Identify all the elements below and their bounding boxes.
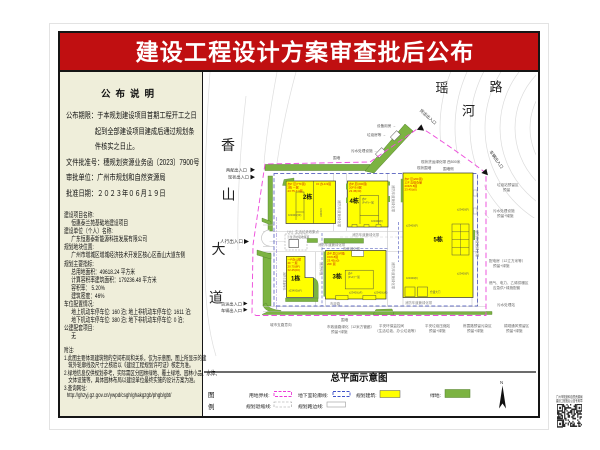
svg-text:±23400(±F): ±23400(±F) bbox=[288, 213, 302, 217]
svg-text:平安垃圾压缩站: 平安垃圾压缩站 bbox=[425, 323, 451, 328]
svg-text:现状货运绿化带 西500米: 现状货运绿化带 西500米 bbox=[421, 159, 461, 164]
svg-text:±23400(F): ±23400(F) bbox=[406, 276, 418, 280]
svg-text:车辆出入口: 车辆出入口 bbox=[221, 307, 242, 314]
svg-text:1栋: 1栋 bbox=[291, 275, 300, 283]
svg-text:污水处理站: 污水处理站 bbox=[497, 302, 515, 307]
svg-text:用地界线:: 用地界线: bbox=[249, 392, 270, 399]
svg-text:消防车道兼绿化带: 消防车道兼绿化带 bbox=[391, 185, 396, 213]
svg-text:市政路: 市政路 bbox=[330, 301, 341, 306]
svg-text:图: 图 bbox=[208, 391, 215, 399]
svg-text:预留+绿施: 预留+绿施 bbox=[506, 328, 523, 333]
svg-text:23.75-7.3展: 23.75-7.3展 bbox=[288, 188, 303, 193]
svg-text:±23400(±F): ±23400(±F) bbox=[289, 289, 303, 293]
svg-text:现状围墙: 现状围墙 bbox=[417, 165, 432, 170]
svg-text:香: 香 bbox=[221, 137, 235, 153]
svg-text:车辆出入口: 车辆出入口 bbox=[488, 149, 506, 170]
svg-text:3栋: 3栋 bbox=[333, 273, 342, 281]
svg-text:规划路边线:: 规划路边线: bbox=[298, 403, 323, 410]
svg-text:地下室轮廓线:: 地下室轮廓线: bbox=[298, 392, 328, 399]
svg-text:货运出入口: 货运出入口 bbox=[418, 107, 438, 126]
svg-text:锦观通风预留区: 锦观通风预留区 bbox=[504, 323, 530, 328]
svg-text:规划建筑:: 规划建筑: bbox=[356, 392, 377, 399]
svg-text:例: 例 bbox=[208, 402, 215, 411]
svg-text:污水处理设施 →: 污水处理设施 → bbox=[351, 148, 377, 153]
svg-text:±2.45(±0): ±2.45(±0) bbox=[288, 268, 300, 272]
svg-text:预留+绿施: 预留+绿施 bbox=[493, 263, 510, 268]
svg-text:办P: 办P bbox=[362, 197, 367, 201]
svg-text:(P+F)一展: (P+F)一展 bbox=[362, 201, 374, 205]
svg-text:现状出入口: 现状出入口 bbox=[228, 174, 249, 181]
svg-text:23.45(±0): 23.45(±0) bbox=[349, 189, 361, 193]
svg-text:办P: 办P bbox=[348, 272, 353, 276]
svg-text:瑶: 瑶 bbox=[436, 81, 449, 96]
svg-text:4栋: 4栋 bbox=[350, 197, 359, 205]
svg-text:燃气、电力、乙烯供暖区: 燃气、电力、乙烯供暖区 bbox=[489, 280, 529, 285]
svg-text:消防车道: 消防车道 bbox=[319, 262, 324, 276]
svg-text:两配出入口: 两配出入口 bbox=[226, 167, 247, 174]
svg-text:应急供+绿施配套: 应急供+绿施配套 bbox=[493, 285, 521, 290]
svg-text:垃圾房等 →: 垃圾房等 → bbox=[367, 132, 386, 137]
svg-text:2栋: 2栋 bbox=[303, 193, 312, 201]
svg-text:污水处理设施: 污水处理设施 bbox=[493, 208, 515, 213]
svg-text:山: 山 bbox=[222, 187, 236, 203]
svg-text:±23400(F): ±23400(F) bbox=[371, 219, 383, 223]
svg-text:仓储大门: 仓储大门 bbox=[430, 290, 441, 294]
svg-text:（六）生活垃圾收集点: （六）生活垃圾收集点 bbox=[285, 229, 320, 234]
svg-text:路: 路 bbox=[490, 80, 503, 95]
svg-text:河: 河 bbox=[462, 104, 475, 119]
svg-text:N: N bbox=[500, 380, 503, 385]
svg-text:围墙: 围墙 bbox=[333, 155, 341, 160]
svg-text:①生活垃圾收集点: ①生活垃圾收集点 bbox=[287, 235, 310, 239]
svg-text:±23400: ±23400 bbox=[319, 208, 323, 217]
svg-text:城市支路意向: 城市支路意向 bbox=[270, 322, 292, 327]
svg-text:±23400(F): ±23400(F) bbox=[457, 272, 469, 276]
svg-text:±23400(F): ±23400(F) bbox=[406, 224, 418, 228]
svg-text:5栋: 5栋 bbox=[434, 236, 443, 244]
svg-text:预留+绿施: 预留+绿施 bbox=[467, 328, 484, 333]
svg-text:设备用房 →: 设备用房 → bbox=[377, 123, 396, 128]
svg-text:消防车道兼绿化带: 消防车道兼绿化带 bbox=[352, 232, 380, 237]
svg-text:消防车道兼绿化带: 消防车道兼绿化带 bbox=[318, 242, 346, 247]
svg-text:货运出入口: 货运出入口 bbox=[221, 301, 242, 308]
svg-text:23.45(±0): 23.45(±0) bbox=[405, 188, 417, 192]
svg-text:围墙侧: 围墙侧 bbox=[443, 166, 454, 171]
svg-text:（生活垃圾、办公垃圾等）: （生活垃圾、办公垃圾等） bbox=[375, 328, 418, 333]
svg-text:市政绿化带: 市政绿化带 bbox=[343, 246, 361, 251]
svg-text:20F 展: 20F 展 bbox=[327, 261, 336, 266]
svg-text:消防车道兼绿化带: 消防车道兼绿化带 bbox=[405, 300, 433, 305]
svg-text:消防车道兼绿化带: 消防车道兼绿化带 bbox=[337, 200, 342, 228]
svg-text:围墙: 围墙 bbox=[341, 317, 349, 322]
svg-text:配电房（12立方米等）: 配电房（12立方米等） bbox=[489, 258, 525, 263]
svg-text:预留+绿施: 预留+绿施 bbox=[429, 328, 446, 333]
svg-text:市政道路绿化（12米方管廊）: 市政道路绿化（12米方管廊） bbox=[327, 324, 374, 329]
svg-text:预留+绿施: 预留+绿施 bbox=[331, 329, 348, 334]
svg-text:±23400(F): ±23400(F) bbox=[457, 208, 469, 212]
svg-text:总平面示意图: 总平面示意图 bbox=[330, 372, 387, 384]
svg-text:(P+F)一展: (P+F)一展 bbox=[348, 275, 360, 279]
svg-text:消防车道兼绿化: 消防车道兼绿化 bbox=[283, 272, 287, 291]
svg-text:垃圾站预留区: 垃圾站预留区 bbox=[497, 182, 519, 187]
svg-text:预留+绿施: 预留+绿施 bbox=[497, 213, 514, 218]
svg-text:炼霞路预留污染区: 炼霞路预留污染区 bbox=[463, 323, 492, 328]
svg-text:消防车道兼绿化带: 消防车道兼绿化带 bbox=[391, 262, 396, 290]
svg-text:消防车道兼绿化带: 消防车道兼绿化带 bbox=[475, 230, 480, 258]
svg-text:预留: 预留 bbox=[503, 187, 511, 192]
svg-text:平安环保监控间: 平安环保监控间 bbox=[379, 323, 405, 328]
svg-text:±23400(±F): ±23400(±F) bbox=[374, 291, 388, 295]
svg-text:±23400(±F): ±23400(±F) bbox=[349, 291, 363, 295]
svg-text:规划退缩线:: 规划退缩线: bbox=[246, 403, 271, 410]
svg-text:绿地:: 绿地: bbox=[430, 392, 441, 399]
svg-text:±F 办-F/2展: ±F 办-F/2展 bbox=[316, 181, 331, 186]
svg-text:人行出入口: 人行出入口 bbox=[220, 238, 243, 245]
